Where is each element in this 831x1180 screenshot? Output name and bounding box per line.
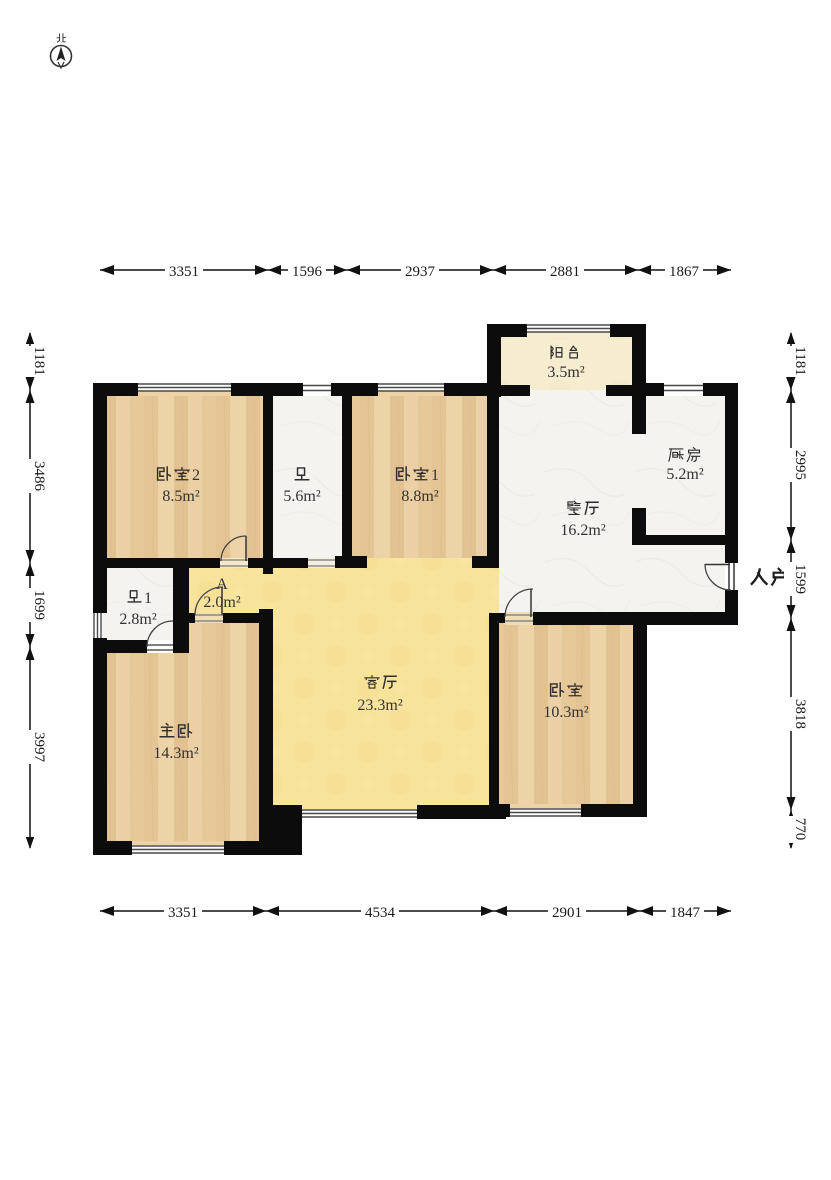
svg-text:2881: 2881	[550, 264, 580, 280]
svg-text:1699: 1699	[31, 590, 47, 620]
svg-text:2.8m²: 2.8m²	[119, 611, 156, 628]
svg-text:5.2m²: 5.2m²	[666, 466, 703, 483]
svg-text:23.3m²: 23.3m²	[357, 697, 402, 714]
svg-text:3351: 3351	[168, 905, 198, 921]
svg-text:3.5m²: 3.5m²	[547, 364, 584, 381]
svg-text:2901: 2901	[552, 905, 582, 921]
svg-text:16.2m²: 16.2m²	[560, 522, 605, 539]
svg-text:1: 1	[144, 590, 152, 607]
svg-text:1181: 1181	[31, 346, 47, 375]
svg-text:3818: 3818	[792, 699, 808, 729]
svg-text:2.0m²: 2.0m²	[203, 594, 240, 611]
svg-text:14.3m²: 14.3m²	[153, 745, 198, 762]
svg-text:2: 2	[192, 467, 200, 484]
svg-text:1181: 1181	[792, 346, 808, 375]
svg-text:2937: 2937	[405, 264, 436, 280]
svg-text:1596: 1596	[292, 264, 323, 280]
svg-text:3486: 3486	[31, 461, 47, 492]
svg-text:770: 770	[792, 818, 808, 841]
svg-text:5.6m²: 5.6m²	[283, 488, 320, 505]
svg-text:3997: 3997	[31, 732, 47, 763]
svg-text:8.5m²: 8.5m²	[162, 488, 199, 505]
svg-text:8.8m²: 8.8m²	[401, 488, 438, 505]
svg-text:1867: 1867	[669, 264, 700, 280]
svg-text:A: A	[216, 576, 228, 593]
svg-text:1847: 1847	[670, 905, 701, 921]
svg-text:3351: 3351	[169, 264, 199, 280]
svg-text:1: 1	[431, 467, 439, 484]
svg-text:2995: 2995	[792, 450, 808, 480]
svg-text:4534: 4534	[365, 905, 396, 921]
svg-text:1599: 1599	[792, 564, 808, 594]
svg-text:10.3m²: 10.3m²	[543, 704, 588, 721]
